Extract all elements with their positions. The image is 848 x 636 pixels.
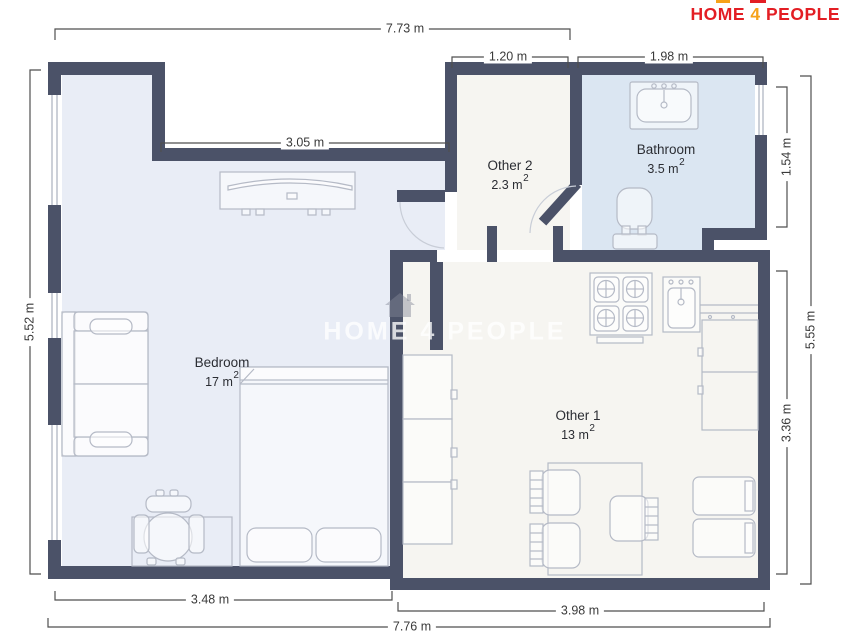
window-bathroom	[755, 85, 767, 135]
stove	[590, 273, 652, 343]
house-icon	[383, 291, 417, 319]
window-left-bottom	[48, 425, 61, 540]
door-leaf-bedroom	[397, 190, 445, 202]
toilet	[613, 188, 657, 249]
kitchen-sink	[663, 277, 700, 332]
brand-logo: HOME 4 PEOPLE	[691, 4, 840, 25]
cabinet-column	[403, 355, 457, 544]
window-left-top	[48, 95, 61, 205]
logo-graphic-fragment-yellow	[716, 0, 730, 3]
floorplan-page: HOME 4 PEOPLE HOME 4 PEOPLE Bedroom 17 m…	[0, 0, 848, 636]
other2-floor	[457, 75, 570, 250]
watermark-four: 4	[420, 318, 437, 346]
logo-graphic-fragment-red	[750, 0, 766, 3]
logo-people: PEOPLE	[766, 4, 840, 24]
bathroom-sink	[630, 82, 698, 129]
window-left-middle	[48, 293, 61, 338]
watermark: HOME 4 PEOPLE	[323, 318, 566, 347]
logo-home: HOME	[691, 4, 746, 24]
sofa	[62, 312, 148, 456]
logo-four: 4	[750, 4, 760, 24]
door-leaf-double-right	[553, 226, 563, 262]
door-leaf-double-left	[487, 226, 497, 262]
watermark-people: PEOPLE	[447, 318, 566, 346]
bed	[240, 367, 388, 566]
watermark-home: HOME	[323, 318, 410, 346]
tv-console	[220, 172, 355, 215]
